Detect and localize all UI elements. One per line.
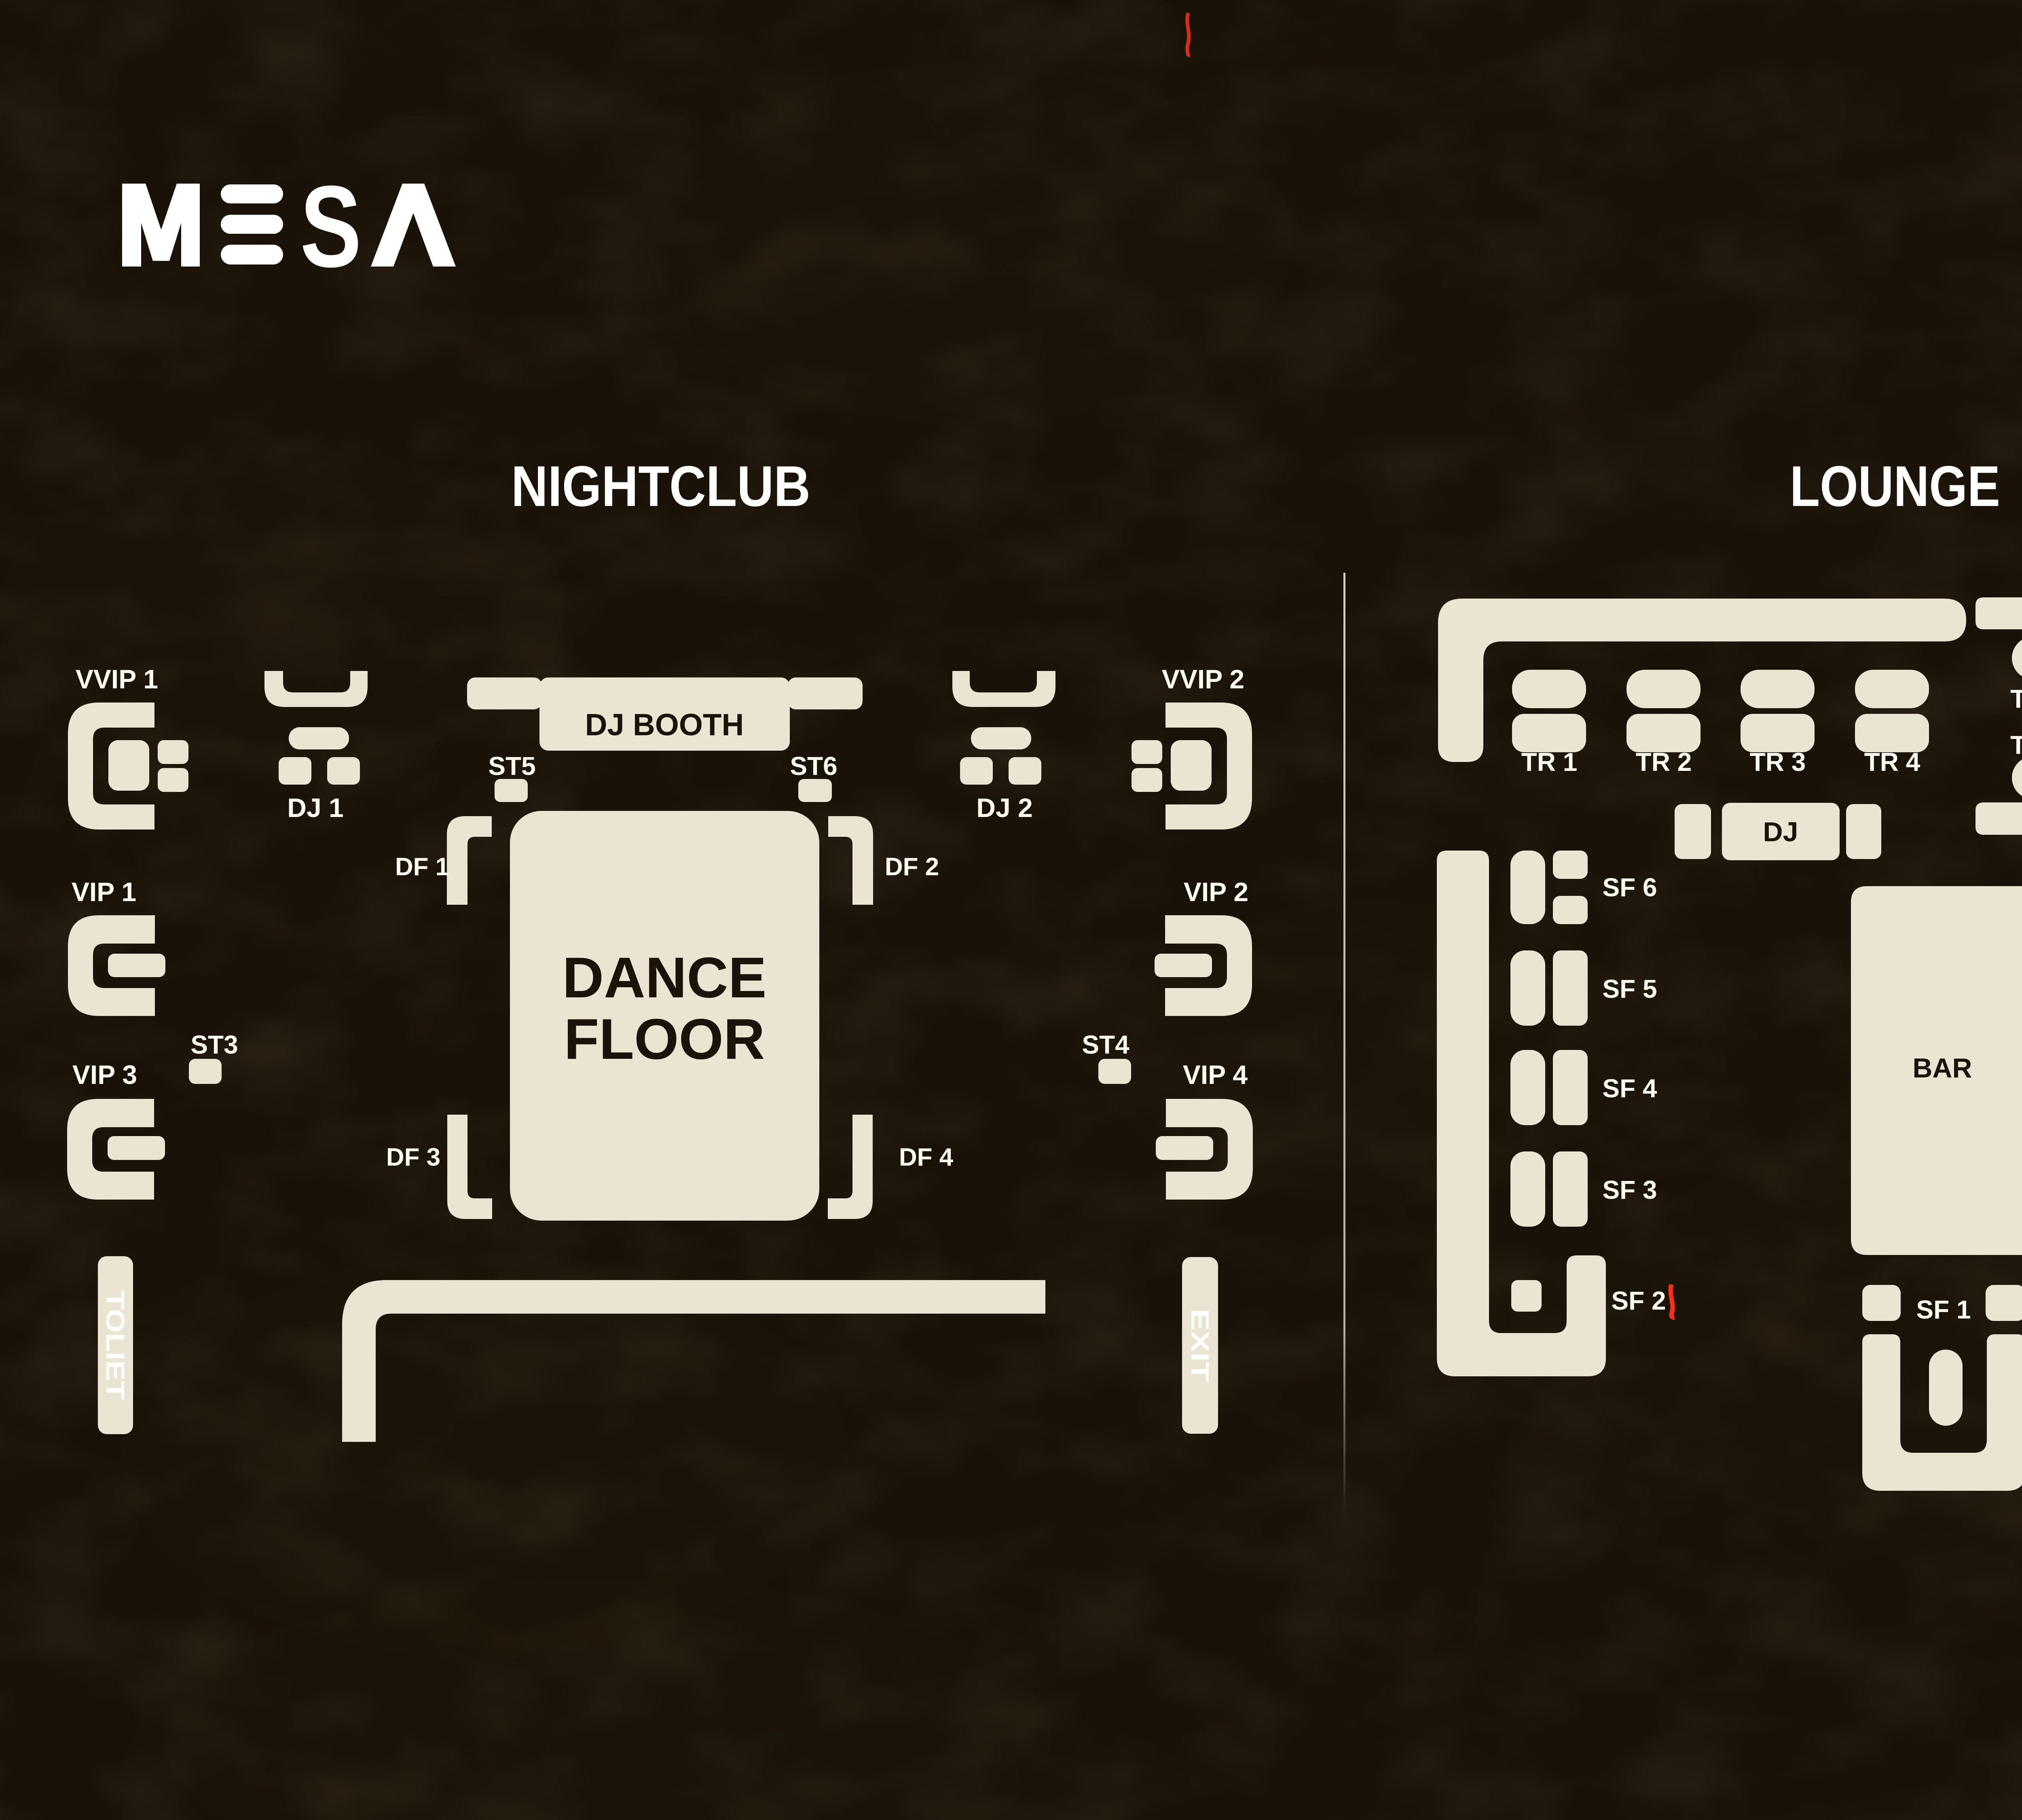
svg-text:ST6: ST6 <box>790 751 837 781</box>
svg-text:NIGHTCLUB: NIGHTCLUB <box>511 454 810 518</box>
svg-text:LOUNGE: LOUNGE <box>1790 454 2000 518</box>
svg-text:DF 4: DF 4 <box>899 1143 954 1171</box>
svg-text:VIP 1: VIP 1 <box>72 877 136 907</box>
svg-text:VIP 2: VIP 2 <box>1184 877 1248 907</box>
svg-text:DJ 2: DJ 2 <box>976 793 1032 823</box>
svg-text:VIP 3: VIP 3 <box>72 1060 137 1090</box>
svg-text:VVIP 1: VVIP 1 <box>76 664 158 694</box>
svg-text:ST3: ST3 <box>190 1030 238 1059</box>
svg-text:TOLIET: TOLIET <box>101 1291 130 1400</box>
svg-text:TR 1: TR 1 <box>1521 747 1578 777</box>
svg-text:VIP 4: VIP 4 <box>1183 1060 1248 1090</box>
svg-text:TR 2: TR 2 <box>1636 747 1692 777</box>
svg-text:DANCE: DANCE <box>563 946 767 1010</box>
svg-text:BAR: BAR <box>1912 1053 1972 1084</box>
svg-text:VVIP 2: VVIP 2 <box>1162 664 1244 694</box>
svg-text:FLOOR: FLOOR <box>564 1007 765 1071</box>
svg-text:SF 2: SF 2 <box>1611 1286 1666 1315</box>
svg-text:SF 6: SF 6 <box>1602 873 1657 902</box>
svg-text:TR 3: TR 3 <box>1750 747 1806 777</box>
svg-text:DF 2: DF 2 <box>885 853 939 881</box>
svg-text:SF 4: SF 4 <box>1602 1074 1657 1103</box>
svg-text:DF 1: DF 1 <box>395 853 449 881</box>
svg-text:ST5: ST5 <box>488 751 535 781</box>
svg-text:DJ 1: DJ 1 <box>287 793 343 823</box>
svg-text:SF 5: SF 5 <box>1602 974 1657 1003</box>
svg-text:DF 3: DF 3 <box>386 1143 440 1171</box>
svg-text:DJ: DJ <box>1763 817 1798 847</box>
svg-text:ST4: ST4 <box>1082 1030 1129 1059</box>
svg-text:TL6: TL6 <box>2010 730 2022 760</box>
svg-text:TL1: TL1 <box>2010 684 2022 713</box>
svg-text:EXIT: EXIT <box>1186 1309 1214 1382</box>
svg-text:S: S <box>300 161 362 291</box>
svg-text:SF 3: SF 3 <box>1602 1175 1657 1204</box>
svg-text:TR 4: TR 4 <box>1864 747 1920 777</box>
svg-text:SF 1: SF 1 <box>1916 1295 1971 1324</box>
svg-text:DJ BOOTH: DJ BOOTH <box>585 708 744 742</box>
